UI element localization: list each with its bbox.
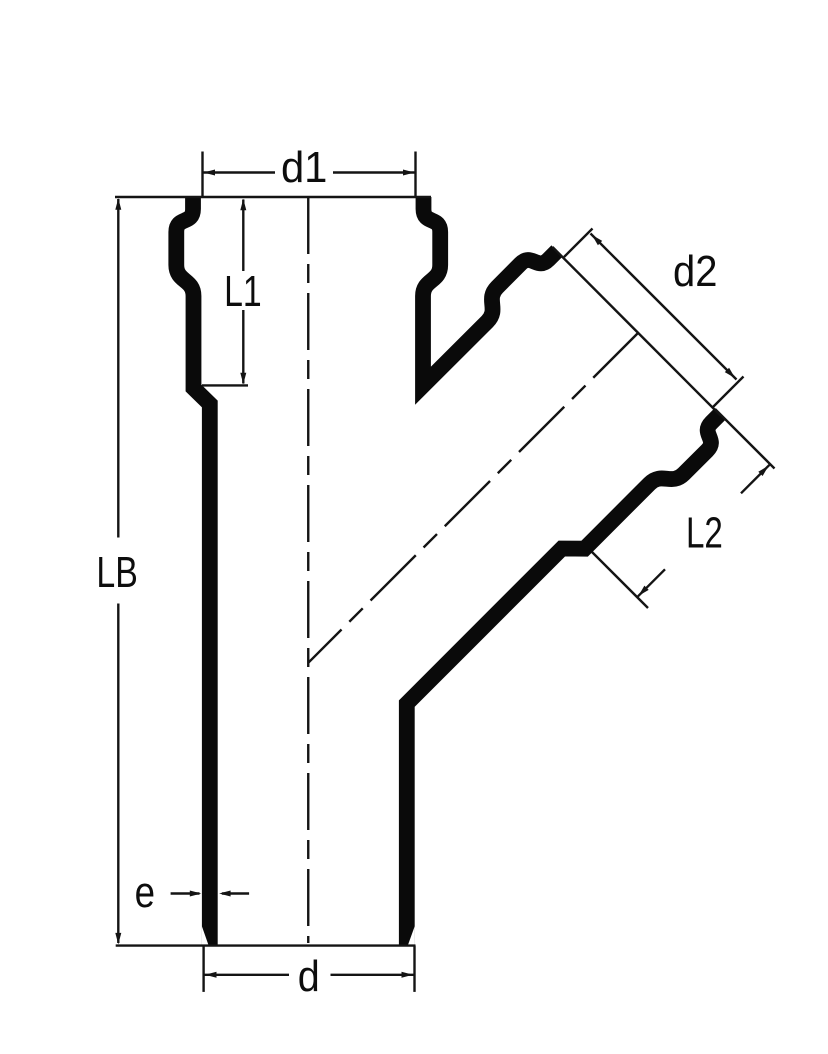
svg-text:d: d (298, 952, 320, 1001)
svg-text:LB: LB (96, 548, 137, 597)
svg-text:d2: d2 (673, 247, 717, 296)
svg-text:L2: L2 (686, 509, 723, 558)
svg-text:e: e (135, 868, 155, 917)
svg-text:L1: L1 (224, 267, 262, 316)
svg-text:d1: d1 (281, 143, 328, 192)
